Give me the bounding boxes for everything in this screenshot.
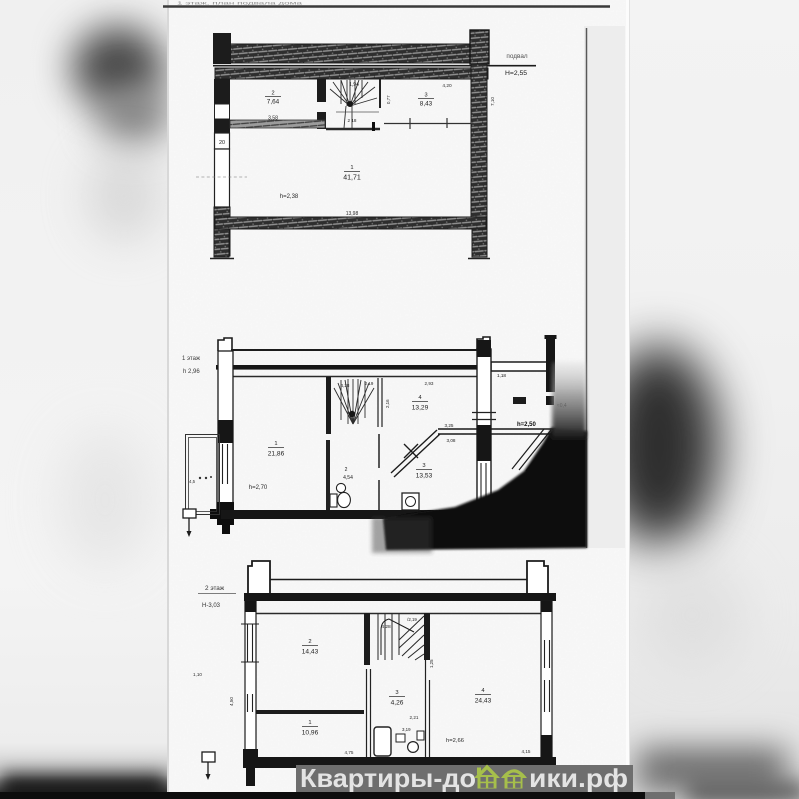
svg-text:1,18: 1,18 <box>497 373 506 378</box>
svg-text:3,19: 3,19 <box>402 727 411 732</box>
svg-text:7,10: 7,10 <box>490 97 495 106</box>
svg-text:7,64: 7,64 <box>267 99 280 106</box>
svg-text:2,19: 2,19 <box>365 381 374 386</box>
svg-text:h 2,96: h 2,96 <box>183 369 200 375</box>
svg-text:h=2,38: h=2,38 <box>280 194 299 200</box>
svg-text:4,28: 4,28 <box>381 624 391 630</box>
svg-text:h=2,70: h=2,70 <box>249 485 268 491</box>
svg-text:3,08: 3,08 <box>447 438 456 443</box>
svg-text:H-3,03: H-3,03 <box>202 603 221 609</box>
svg-text:3,58: 3,58 <box>268 116 278 122</box>
svg-text:4,50: 4,50 <box>229 697 234 706</box>
svg-text:41,71: 41,71 <box>343 175 361 182</box>
svg-text:1,25: 1,25 <box>429 659 434 668</box>
svg-text:8,43: 8,43 <box>420 101 433 108</box>
svg-text:4,75: 4,75 <box>345 750 354 755</box>
svg-text:3: 3 <box>395 690 398 696</box>
svg-text:Квартиры-до: Квартиры-до <box>300 763 476 793</box>
svg-text:2 этаж: 2 этаж <box>205 585 225 592</box>
svg-text:1,10: 1,10 <box>193 672 202 677</box>
svg-text:13,98: 13,98 <box>346 211 359 217</box>
svg-text:2,16: 2,16 <box>385 399 390 408</box>
svg-text:2: 2 <box>271 91 274 97</box>
svg-text:2,93: 2,93 <box>425 381 434 386</box>
svg-text:h=2,66: h=2,66 <box>446 738 464 744</box>
svg-text:24,43: 24,43 <box>475 698 492 705</box>
svg-text:2: 2 <box>345 467 348 473</box>
svg-text:ики.рф: ики.рф <box>529 763 628 793</box>
svg-text:3: 3 <box>422 463 425 469</box>
svg-text:4,5: 4,5 <box>189 479 196 484</box>
svg-text:13,53: 13,53 <box>416 473 433 480</box>
svg-text:2,21: 2,21 <box>410 715 419 720</box>
svg-text:14,43: 14,43 <box>302 649 319 656</box>
svg-text:1 этаж: 1 этаж <box>182 356 200 362</box>
svg-text:H=2,55: H=2,55 <box>505 70 527 77</box>
svg-text:h=2,50: h=2,50 <box>517 422 537 428</box>
svg-text:13,29: 13,29 <box>412 405 429 412</box>
svg-text:4,20: 4,20 <box>442 83 452 89</box>
svg-text:0,77: 0,77 <box>386 95 391 104</box>
svg-text:1 этаж. план подвала дома: 1 этаж. план подвала дома <box>177 1 303 6</box>
svg-text:3,25: 3,25 <box>445 423 454 428</box>
svg-text:1: 1 <box>308 720 311 726</box>
svg-text:1,94: 1,94 <box>349 82 359 88</box>
svg-text:20: 20 <box>219 140 225 146</box>
svg-text:10,96: 10,96 <box>302 730 319 737</box>
svg-text:подвал: подвал <box>506 53 527 60</box>
svg-text:2: 2 <box>308 639 311 645</box>
svg-text:1: 1 <box>274 441 277 447</box>
svg-text:2 18: 2 18 <box>348 118 357 123</box>
svg-text:4,15: 4,15 <box>522 749 531 754</box>
svg-text:/2,19: /2,19 <box>407 617 417 622</box>
svg-text:1: 1 <box>350 165 353 171</box>
svg-text:4,26: 4,26 <box>391 700 404 707</box>
svg-text:3: 3 <box>424 93 427 99</box>
svg-text:4,28: 4,28 <box>341 383 350 388</box>
svg-text:4,54: 4,54 <box>343 475 353 481</box>
svg-text:21,86: 21,86 <box>268 451 285 458</box>
